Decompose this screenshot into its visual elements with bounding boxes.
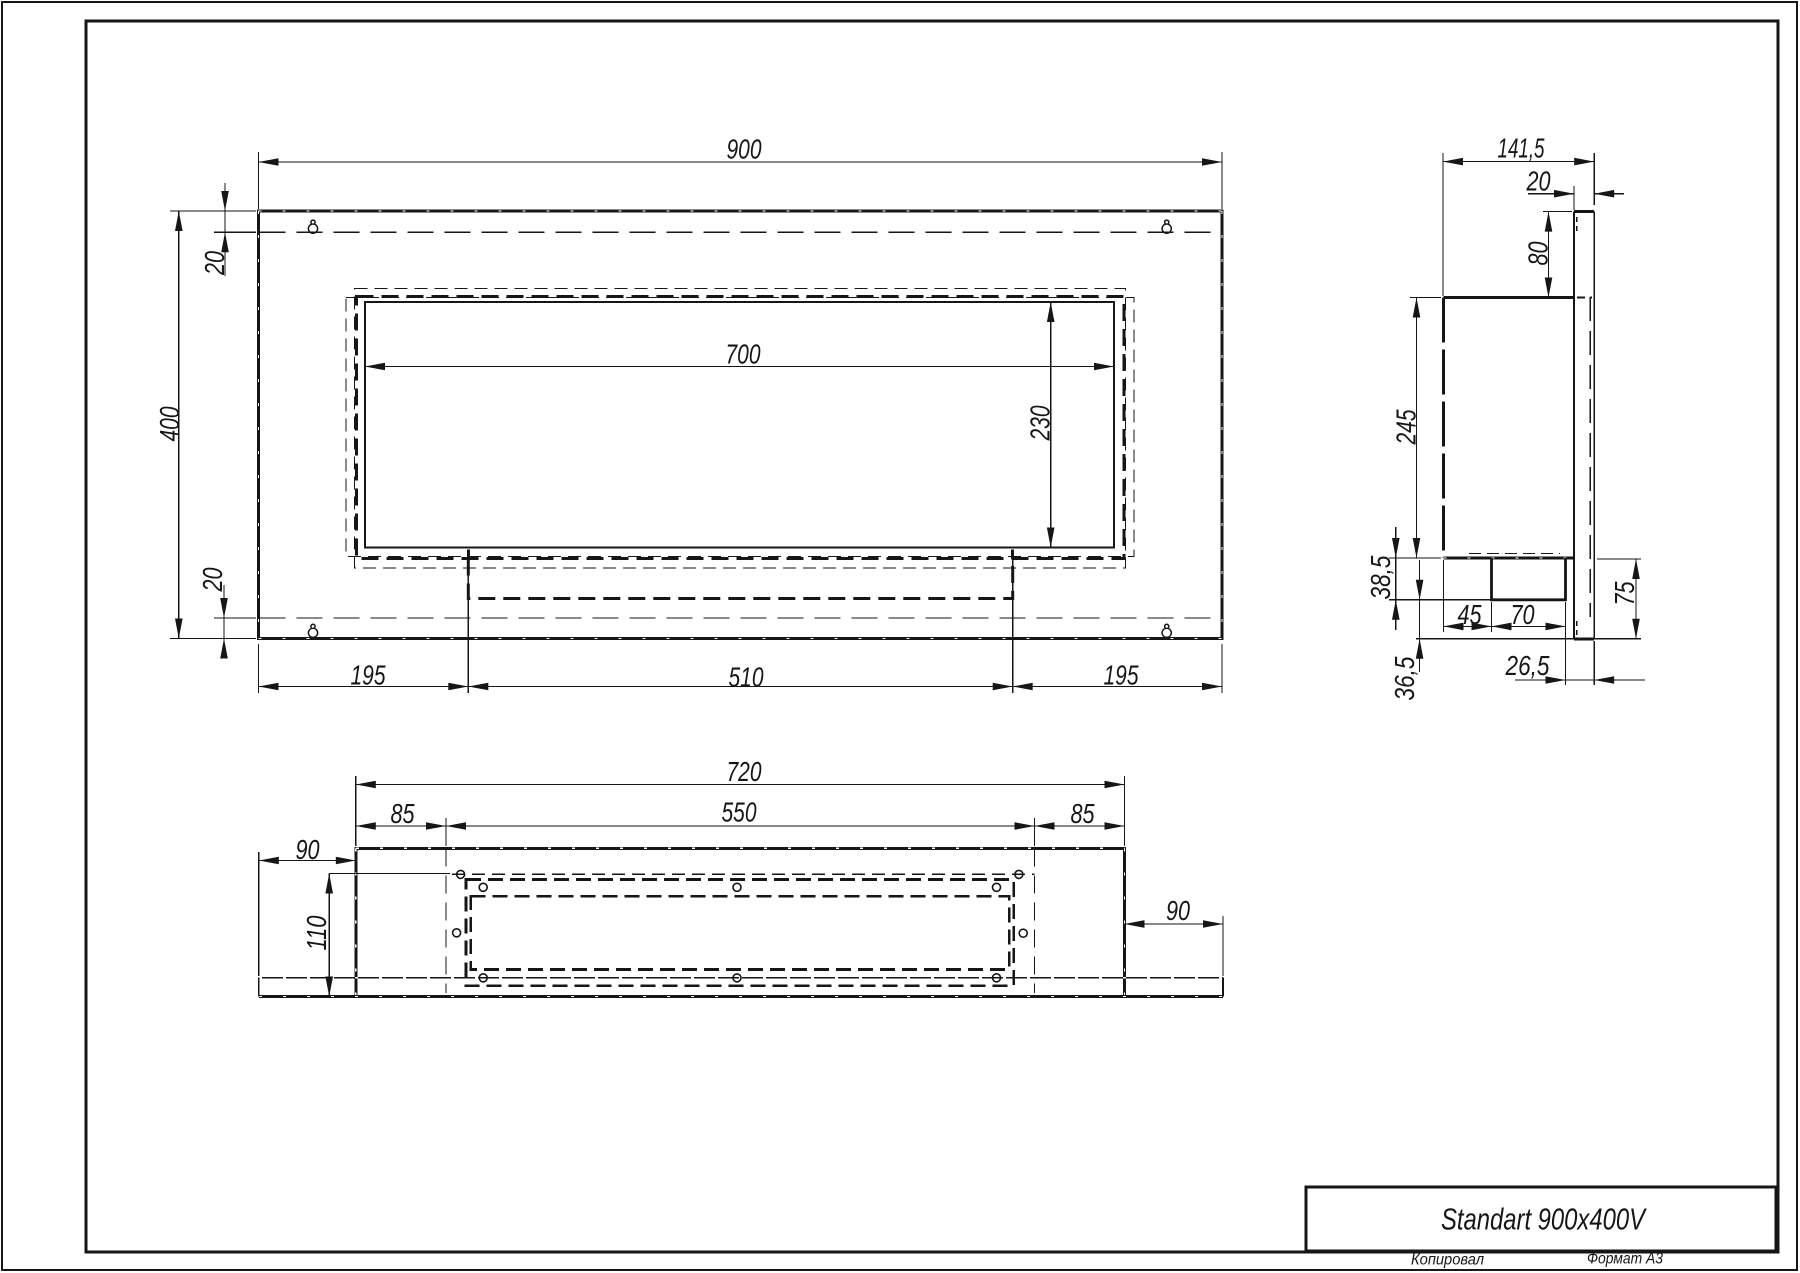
svg-text:141,5: 141,5 <box>1498 133 1545 164</box>
svg-text:20: 20 <box>199 251 230 276</box>
svg-text:195: 195 <box>351 660 386 691</box>
svg-text:245: 245 <box>1391 409 1422 445</box>
svg-text:90: 90 <box>296 834 320 865</box>
svg-text:70: 70 <box>1511 599 1535 630</box>
svg-text:510: 510 <box>729 662 764 693</box>
svg-text:90: 90 <box>1166 895 1190 926</box>
svg-text:38,5: 38,5 <box>1365 555 1396 599</box>
svg-text:700: 700 <box>726 339 761 370</box>
svg-text:550: 550 <box>722 797 757 828</box>
svg-text:20: 20 <box>1526 166 1551 197</box>
svg-text:85: 85 <box>1071 798 1095 829</box>
svg-text:Формат А3: Формат А3 <box>1587 1251 1663 1268</box>
svg-text:85: 85 <box>391 798 415 829</box>
svg-text:900: 900 <box>727 134 762 165</box>
svg-text:45: 45 <box>1458 599 1482 630</box>
svg-text:720: 720 <box>727 756 762 787</box>
svg-text:36,5: 36,5 <box>1389 656 1420 700</box>
svg-text:195: 195 <box>1104 660 1139 691</box>
svg-text:75: 75 <box>1609 581 1640 605</box>
svg-text:230: 230 <box>1025 405 1056 441</box>
svg-text:26,5: 26,5 <box>1505 650 1550 681</box>
svg-text:20: 20 <box>197 567 228 592</box>
svg-text:80: 80 <box>1523 241 1554 265</box>
svg-text:400: 400 <box>154 406 185 441</box>
svg-text:Standart 900x400V: Standart 900x400V <box>1441 1202 1648 1237</box>
svg-text:Копировал: Копировал <box>1411 1252 1484 1269</box>
svg-text:110: 110 <box>301 915 332 950</box>
